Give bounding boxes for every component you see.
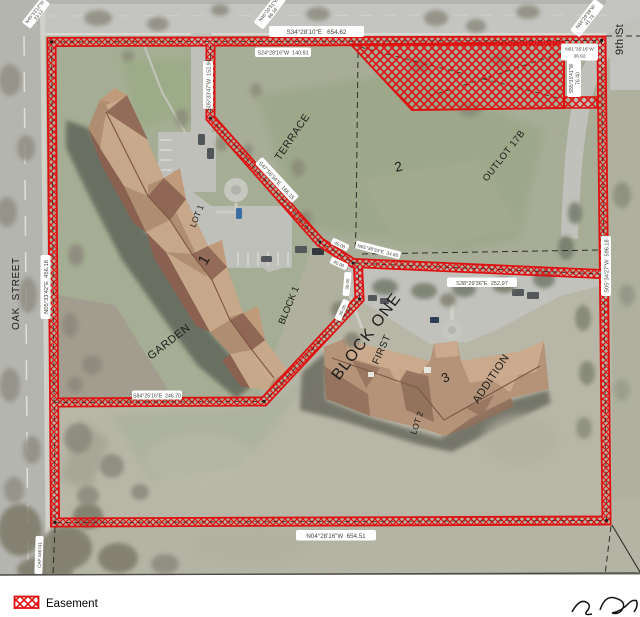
svg-text:S38°29'36"E 252.97: S38°29'36"E 252.97 — [456, 281, 508, 287]
svg-text:S05°34'27"W 596.18: S05°34'27"W 596.18 — [604, 239, 610, 292]
svg-text:N04°28'16"W 654.51: N04°28'16"W 654.51 — [306, 533, 366, 540]
svg-text:CAP #46741: CAP #46741 — [37, 542, 43, 569]
svg-text:9th St: 9th St — [614, 24, 626, 55]
svg-text:OAK STREET: OAK STREET — [11, 257, 22, 330]
svg-text:Easement: Easement — [46, 598, 99, 610]
svg-text:N01°35'16"W: N01°35'16"W — [565, 47, 594, 53]
svg-text:S05°33'47"W 152.94: S05°33'47"W 152.94 — [206, 59, 212, 110]
svg-text:76.40: 76.40 — [575, 72, 581, 85]
svg-text:36.92: 36.92 — [573, 54, 585, 60]
svg-text:S24°28'16"W 140.91: S24°28'16"W 140.91 — [257, 51, 308, 57]
svg-text:30.00: 30.00 — [345, 278, 351, 290]
svg-text:N05°33'42"E 456.18: N05°33'42"E 456.18 — [44, 260, 50, 314]
svg-text:S34°28'10"E 654.62: S34°28'10"E 654.62 — [287, 28, 347, 36]
svg-text:S55°31'41"W: S55°31'41"W — [569, 63, 575, 93]
svg-text:S84°25'16"E 246.70: S84°25'16"E 246.70 — [133, 393, 181, 399]
